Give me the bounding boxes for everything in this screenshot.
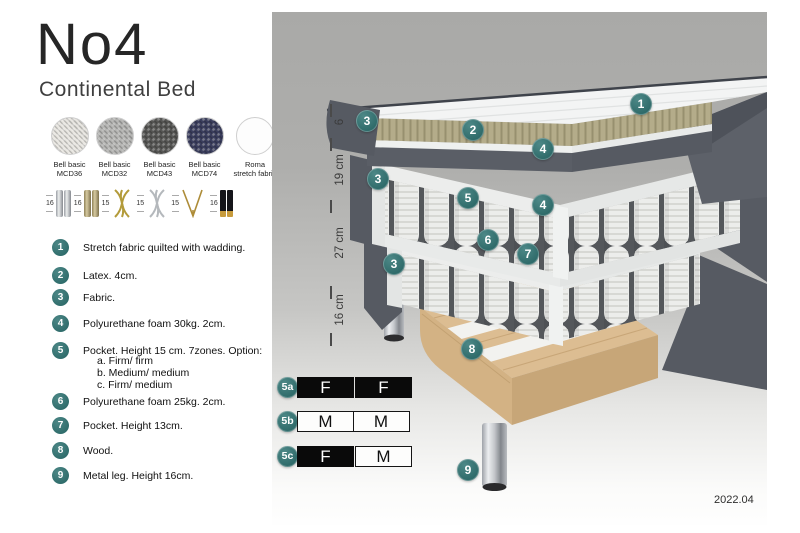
dim-tick (330, 286, 332, 299)
callout-1: 1 (630, 93, 652, 115)
fabric-swatch-icon (236, 117, 274, 155)
callout-6: 6 (477, 229, 499, 251)
spec-option-c: c. Firm/ medium (97, 379, 172, 391)
spec-text: Stretch fabric quilted with wadding. (83, 239, 245, 254)
dim-tick (330, 104, 332, 117)
firmness-cell: M (355, 446, 412, 467)
item-number-badge: 6 (52, 393, 69, 410)
leg-cylinder-wood-icon (84, 190, 99, 217)
firmness-cell: F (355, 377, 412, 398)
leg-option: 16 (74, 190, 99, 217)
leg-option: 16 (46, 190, 71, 217)
leg-twist-silver-icon (146, 189, 168, 218)
spec-item-8: 8 Wood. (52, 442, 113, 459)
callout-3: 3 (383, 253, 405, 275)
spec-text: Polyurethane foam 30kg. 2cm. (83, 315, 225, 330)
dim-label-19cm: 19 cm (334, 154, 346, 185)
fabric-name: Bell basic (98, 160, 130, 169)
leg-option: 16 (210, 190, 233, 217)
callout-3: 3 (367, 168, 389, 190)
item-number-badge: 7 (52, 417, 69, 434)
item-number-badge: 3 (52, 289, 69, 306)
fabric-option: Bell basicMCD32 (94, 117, 135, 179)
fabric-swatch-icon (141, 117, 179, 155)
dim-tick (330, 333, 332, 346)
firmness-cell: F (297, 446, 354, 467)
fabric-code: MCD74 (192, 169, 217, 178)
item-number-badge: 8 (52, 442, 69, 459)
spec-option-b: b. Medium/ medium (97, 367, 189, 379)
leg-hairpin-gold-icon (181, 189, 207, 218)
item-number-badge: 2 (52, 267, 69, 284)
fabric-code: MCD43 (147, 169, 172, 178)
spec-sheet: { "title": "No4", "subtitle": "Continent… (0, 0, 800, 533)
firmness-cell: F (297, 377, 354, 398)
item-number-badge: 4 (52, 315, 69, 332)
leg-cylinder-chrome-icon (56, 190, 71, 217)
callout-9: 9 (457, 459, 479, 481)
spec-item-7: 7 Pocket. Height 13cm. (52, 417, 183, 434)
spec-item-2: 2 Latex. 4cm. (52, 267, 137, 284)
dim-label-top: 6 (334, 119, 346, 125)
fabric-option: Bell basicMCD36 (49, 117, 90, 179)
leg-height: 16 (46, 191, 54, 216)
dim-label-27cm: 27 cm (334, 227, 346, 258)
fabric-option: Bell basicMCD43 (139, 117, 180, 179)
firmness-bar-5b: M M (297, 411, 408, 432)
spec-item-4: 4 Polyurethane foam 30kg. 2cm. (52, 315, 225, 332)
leg-cylinder-black-gold-icon (220, 190, 233, 217)
spec-text: Fabric. (83, 289, 115, 304)
front-leg (482, 423, 507, 491)
dim-label-16cm: 16 cm (334, 294, 346, 325)
callout-8: 8 (461, 338, 483, 360)
callout-5: 5 (457, 187, 479, 209)
firmness-cell: M (297, 411, 354, 432)
callout-2: 2 (462, 119, 484, 141)
fabric-name: Bell basic (53, 160, 85, 169)
spec-item-1: 1 Stretch fabric quilted with wadding. (52, 239, 245, 256)
leg-option-list: 16 16 15 15 15 (46, 189, 233, 218)
fabric-swatch-icon (186, 117, 224, 155)
fabric-code: MCD36 (57, 169, 82, 178)
fabric-option: Bell basicMCD74 (184, 117, 225, 179)
dim-tick (330, 200, 332, 213)
version-stamp: 2022.04 (714, 494, 754, 506)
spec-item-6: 6 Polyurethane foam 25kg. 2cm. (52, 393, 225, 410)
firmness-label-5b: 5b (277, 411, 298, 432)
spec-text: Pocket. Height 13cm. (83, 417, 183, 432)
spec-text: Latex. 4cm. (83, 267, 137, 282)
callout-3: 3 (356, 110, 378, 132)
fabric-swatch-list: Bell basicMCD36 Bell basicMCD32 Bell bas… (49, 117, 281, 179)
item-number-badge: 5 (52, 342, 69, 359)
spec-item-3: 3 Fabric. (52, 289, 115, 306)
dim-tick (330, 138, 332, 151)
fabric-name: Bell basic (188, 160, 220, 169)
item-number-badge: 9 (52, 467, 69, 484)
fabric-swatch-icon (51, 117, 89, 155)
leg-height: 16 (210, 191, 218, 216)
firmness-label-5c: 5c (277, 446, 298, 467)
leg-option: 15 (102, 189, 134, 218)
leg-height: 15 (171, 191, 179, 216)
spec-text: Metal leg. Height 16cm. (83, 467, 193, 482)
leg-height: 15 (102, 191, 110, 216)
callout-4: 4 (532, 194, 554, 216)
fabric-swatch-icon (96, 117, 134, 155)
fabric-code: stretch fabric (234, 169, 277, 178)
spec-option-a: a. Firm/ firm (97, 355, 153, 367)
product-subtitle: Continental Bed (39, 78, 196, 102)
product-title: No4 (36, 16, 148, 74)
leg-height: 15 (136, 191, 144, 216)
firmness-cell: M (353, 411, 410, 432)
firmness-bar-5c: F M (297, 446, 411, 467)
leg-option: 15 (136, 189, 168, 218)
spec-text: Polyurethane foam 25kg. 2cm. (83, 393, 225, 408)
fabric-name: Bell basic (143, 160, 175, 169)
leg-height: 16 (74, 191, 82, 216)
fabric-code: MCD32 (102, 169, 127, 178)
callout-7: 7 (517, 243, 539, 265)
firmness-bar-5a: F F (297, 377, 413, 398)
spec-item-5: 5 Pocket. Height 15 cm. 7zones. Option: (52, 342, 262, 359)
firmness-label-5a: 5a (277, 377, 298, 398)
fabric-name: Roma (245, 160, 265, 169)
leg-twist-gold-icon (111, 189, 133, 218)
spec-text: Wood. (83, 442, 113, 457)
spec-item-9: 9 Metal leg. Height 16cm. (52, 467, 193, 484)
item-number-badge: 1 (52, 239, 69, 256)
leg-option: 15 (171, 189, 207, 218)
callout-4: 4 (532, 138, 554, 160)
spec-panel: No4 Continental Bed Bell basicMCD36 Bell… (0, 0, 272, 533)
